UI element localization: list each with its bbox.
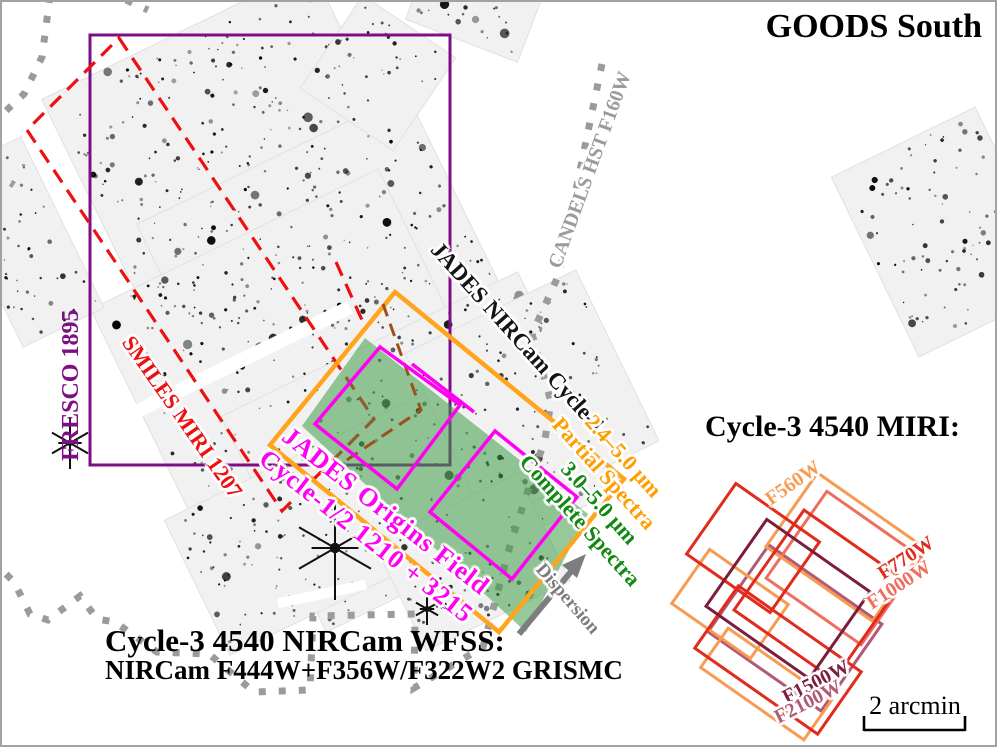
miri-footprint-f2100w — [708, 545, 882, 711]
scale-bar — [864, 716, 965, 731]
miri-footprint-f770w — [734, 510, 904, 680]
miri-footprint-f770w — [687, 484, 820, 613]
miri-footprints — [672, 473, 924, 740]
survey-footprint-canvas — [2, 2, 997, 747]
miri-footprint-f560w — [701, 628, 832, 740]
goods-south-survey-figure: GOODS South CANDELS HST F160W FRESCO 189… — [0, 0, 997, 747]
miri-footprint-f770w — [695, 586, 861, 734]
mosaic-tile — [831, 107, 997, 357]
diffraction-star — [52, 417, 88, 469]
miri-footprint-f560w — [672, 549, 788, 658]
